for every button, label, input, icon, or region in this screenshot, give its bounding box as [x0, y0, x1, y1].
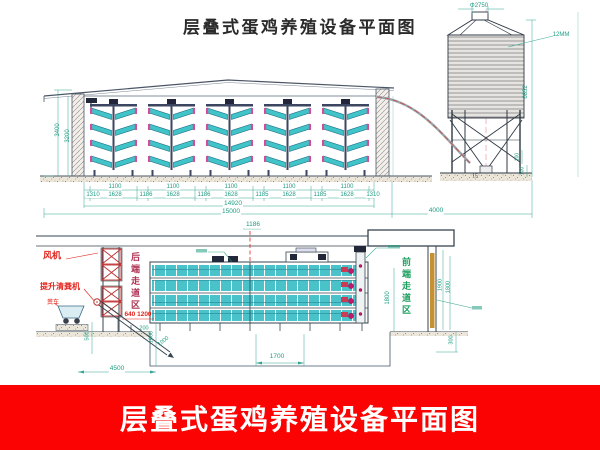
dim-chain: 1628	[223, 192, 238, 198]
dim-chain: 1628	[281, 192, 296, 198]
dim-total-inner: 14920	[223, 201, 243, 208]
dim-chain: 1310	[365, 192, 380, 198]
dim-chain: 1628	[339, 192, 354, 198]
dim-cage-width: 1100	[224, 184, 239, 190]
dim-chain: 1185	[313, 192, 328, 198]
rear-walkway-label: 后端走道区	[130, 252, 139, 312]
upper-house-section	[40, 80, 432, 182]
dim-chain: 1185	[255, 192, 270, 198]
dim-chain: 1628	[165, 192, 180, 198]
dim-silo-top-diameter: Φ2750	[470, 3, 488, 9]
dim-200: 200	[139, 326, 148, 332]
dim-cage-width: 1100	[166, 184, 181, 190]
dim-bay: 1186	[245, 222, 261, 229]
dim-total-outer: 15000	[221, 209, 241, 216]
dim-wall-height-inner: 3200	[65, 129, 71, 142]
dim-silo-height: 6852	[523, 85, 529, 98]
caption-banner: 层叠式蛋鸡养殖设备平面图	[0, 385, 600, 450]
dim-1700: 1700	[269, 354, 285, 361]
dim-wall-height-outer: 3400	[55, 123, 61, 136]
dim-chain: 1628	[107, 192, 122, 198]
page: 层叠式蛋鸡养殖设备平面图 3400 3200 1100 1100 1100 11…	[0, 0, 600, 450]
manure-cart-label: 粪车	[47, 300, 59, 306]
dim-chain: 1186	[197, 192, 212, 198]
dim-4500: 4500	[109, 366, 125, 373]
dim-house-to-silo: 4000	[428, 208, 444, 215]
silo-body-label: 12MM	[553, 32, 570, 38]
dim-1600: 1600	[149, 331, 155, 343]
dim-chain: 1186	[139, 192, 154, 198]
silo-base-mark: 15	[472, 175, 478, 180]
page-title: 层叠式蛋鸡养殖设备平面图	[0, 13, 600, 38]
dim-cage-width: 1100	[108, 184, 123, 190]
dim-1900: 1900	[438, 279, 444, 291]
manure-hoist-label: 提升清粪机	[40, 283, 80, 291]
dim-silo-leg-bottom: 100	[521, 167, 526, 175]
dim-rear-door: 640 1200	[124, 312, 151, 319]
dim-1800b: 1800	[446, 281, 452, 293]
dim-silo-leg-top: 100	[516, 153, 521, 161]
dim-500: 500	[85, 331, 91, 340]
dim-cage-width: 1100	[282, 184, 297, 190]
dim-chain: 1310	[85, 192, 100, 198]
caption-text: 层叠式蛋鸡养殖设备平面图	[120, 398, 480, 438]
dim-300: 300	[449, 335, 455, 344]
fan-label: 风机	[43, 252, 61, 261]
dim-cage-width: 1100	[340, 184, 355, 190]
dim-1800: 1800	[385, 291, 391, 304]
front-walkway-label: 前端走道区	[401, 257, 410, 317]
